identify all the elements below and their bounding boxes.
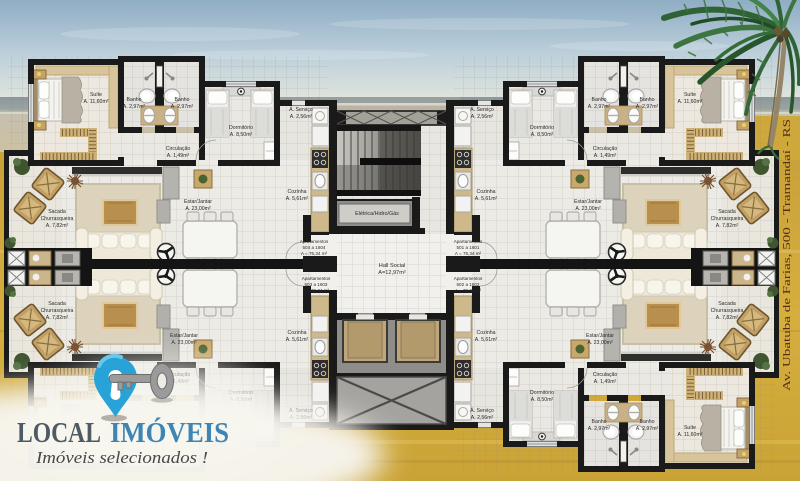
svg-text:Cozinha: Cozinha — [287, 330, 306, 336]
svg-text:A. 2,97m²: A. 2,97m² — [588, 426, 611, 432]
svg-text:Suíte: Suíte — [90, 92, 102, 98]
svg-text:A. 8,50m²: A. 8,50m² — [531, 132, 554, 138]
svg-text:A. 2,56m²: A. 2,56m² — [471, 415, 494, 421]
svg-text:Imóveis selecionados !: Imóveis selecionados ! — [35, 448, 208, 467]
svg-text:Suíte: Suíte — [684, 425, 696, 431]
svg-text:Banho: Banho — [639, 419, 654, 425]
svg-text:Churrasqueira: Churrasqueira — [41, 216, 74, 222]
svg-text:Circulação: Circulação — [593, 146, 618, 152]
svg-text:Estar/Jantar: Estar/Jantar — [586, 333, 614, 339]
svg-text:Á. Serviço: Á. Serviço — [470, 106, 494, 113]
svg-text:Churrasqueira: Churrasqueira — [711, 216, 744, 222]
svg-text:Cozinha: Cozinha — [476, 330, 495, 336]
svg-text:A. 2,97m²: A. 2,97m² — [123, 104, 146, 110]
svg-text:Cozinha: Cozinha — [476, 189, 495, 195]
svg-text:A. 7,82m²: A. 7,82m² — [46, 223, 69, 229]
svg-text:A. 23,00m²: A. 23,00m² — [171, 340, 197, 346]
svg-text:Apartamentos: Apartamentos — [300, 239, 329, 244]
svg-text:IMÓVEIS: IMÓVEIS — [110, 418, 229, 449]
svg-text:Cozinha: Cozinha — [287, 189, 306, 195]
svg-text:Estar/Jantar: Estar/Jantar — [574, 199, 602, 205]
svg-text:A. 23,00m²: A. 23,00m² — [185, 206, 211, 212]
svg-text:A. 1,49m²: A. 1,49m² — [594, 153, 617, 159]
svg-text:A. 11,60m²: A. 11,60m² — [678, 432, 703, 438]
svg-text:Dormitório: Dormitório — [530, 390, 554, 396]
svg-text:A. 2,97m²: A. 2,97m² — [588, 104, 611, 110]
svg-text:Banho: Banho — [639, 97, 654, 103]
svg-text:A = 76,34 m²: A = 76,34 m² — [301, 251, 328, 256]
svg-text:A. 11,60m²: A. 11,60m² — [84, 99, 109, 105]
svg-text:A. 2,56m²: A. 2,56m² — [471, 114, 494, 120]
svg-text:Sacada: Sacada — [48, 209, 66, 215]
svg-text:A. 5,61m²: A. 5,61m² — [286, 196, 309, 202]
svg-text:Apartamentos: Apartamentos — [454, 239, 483, 244]
svg-text:Dormitório: Dormitório — [530, 125, 554, 131]
svg-text:A. 8,50m²: A. 8,50m² — [531, 397, 554, 403]
svg-text:Estar/Jantar: Estar/Jantar — [184, 199, 212, 205]
svg-text:Suíte: Suíte — [684, 92, 696, 98]
svg-text:Estar/Jantar: Estar/Jantar — [170, 333, 198, 339]
svg-text:A. 5,61m²: A. 5,61m² — [475, 196, 498, 202]
svg-text:A = 76,34 m²: A = 76,34 m² — [455, 288, 482, 293]
svg-text:Banho: Banho — [126, 97, 141, 103]
svg-text:A = 76,34 m²: A = 76,34 m² — [303, 288, 330, 293]
svg-text:A. 7,82m²: A. 7,82m² — [716, 315, 739, 321]
svg-text:A=12,97m²: A=12,97m² — [378, 270, 406, 276]
svg-text:Hall Social: Hall Social — [379, 263, 405, 269]
svg-text:Sacada: Sacada — [718, 301, 736, 307]
svg-text:Apartamentos: Apartamentos — [302, 276, 331, 281]
svg-text:Á. Serviço: Á. Serviço — [470, 407, 494, 414]
svg-text:Banho: Banho — [591, 97, 606, 103]
svg-text:Circulação: Circulação — [166, 146, 191, 152]
svg-text:A. 2,97m²: A. 2,97m² — [636, 426, 659, 432]
svg-text:A. 23,00m²: A. 23,00m² — [575, 206, 601, 212]
svg-text:A. 5,61m²: A. 5,61m² — [475, 337, 498, 343]
svg-text:A. 2,56m²: A. 2,56m² — [290, 114, 313, 120]
svg-text:Á. Serviço: Á. Serviço — [289, 106, 313, 113]
svg-text:A. 1,49m²: A. 1,49m² — [167, 153, 190, 159]
svg-text:Sacada: Sacada — [48, 301, 66, 307]
svg-text:A = 76,34 m²: A = 76,34 m² — [455, 251, 482, 256]
svg-text:A. 5,61m²: A. 5,61m² — [286, 337, 309, 343]
svg-text:LOCAL: LOCAL — [17, 418, 101, 449]
svg-text:A. 2,97m²: A. 2,97m² — [171, 104, 194, 110]
svg-text:Banho: Banho — [591, 419, 606, 425]
svg-text:503 a 1603: 503 a 1603 — [305, 282, 328, 287]
svg-text:A. 11,60m²: A. 11,60m² — [678, 99, 703, 105]
svg-text:502 a 1602: 502 a 1602 — [457, 282, 480, 287]
svg-text:Sacada: Sacada — [718, 209, 736, 215]
svg-text:Elétrica/Hidro/Gás: Elétrica/Hidro/Gás — [355, 211, 399, 217]
svg-text:A. 8,50m²: A. 8,50m² — [230, 132, 253, 138]
svg-text:Circulação: Circulação — [593, 372, 618, 378]
svg-text:A. 2,97m²: A. 2,97m² — [636, 104, 659, 110]
svg-text:Churrasqueira: Churrasqueira — [41, 308, 74, 314]
svg-text:504 a 1604: 504 a 1604 — [303, 245, 326, 250]
svg-text:Churrasqueira: Churrasqueira — [711, 308, 744, 314]
svg-text:501 a 1601: 501 a 1601 — [457, 245, 480, 250]
svg-text:A. 23,00m²: A. 23,00m² — [587, 340, 613, 346]
svg-text:A. 7,82m²: A. 7,82m² — [716, 223, 739, 229]
svg-text:Av. Ubatuba de Farias, 500 - T: Av. Ubatuba de Farias, 500 - Tramandaí -… — [782, 119, 793, 391]
svg-text:Dormitório: Dormitório — [229, 125, 253, 131]
svg-text:Apartamentos: Apartamentos — [454, 276, 483, 281]
svg-text:Banho: Banho — [174, 97, 189, 103]
svg-text:A. 7,82m²: A. 7,82m² — [46, 315, 69, 321]
svg-text:A. 1,49m²: A. 1,49m² — [594, 379, 617, 385]
